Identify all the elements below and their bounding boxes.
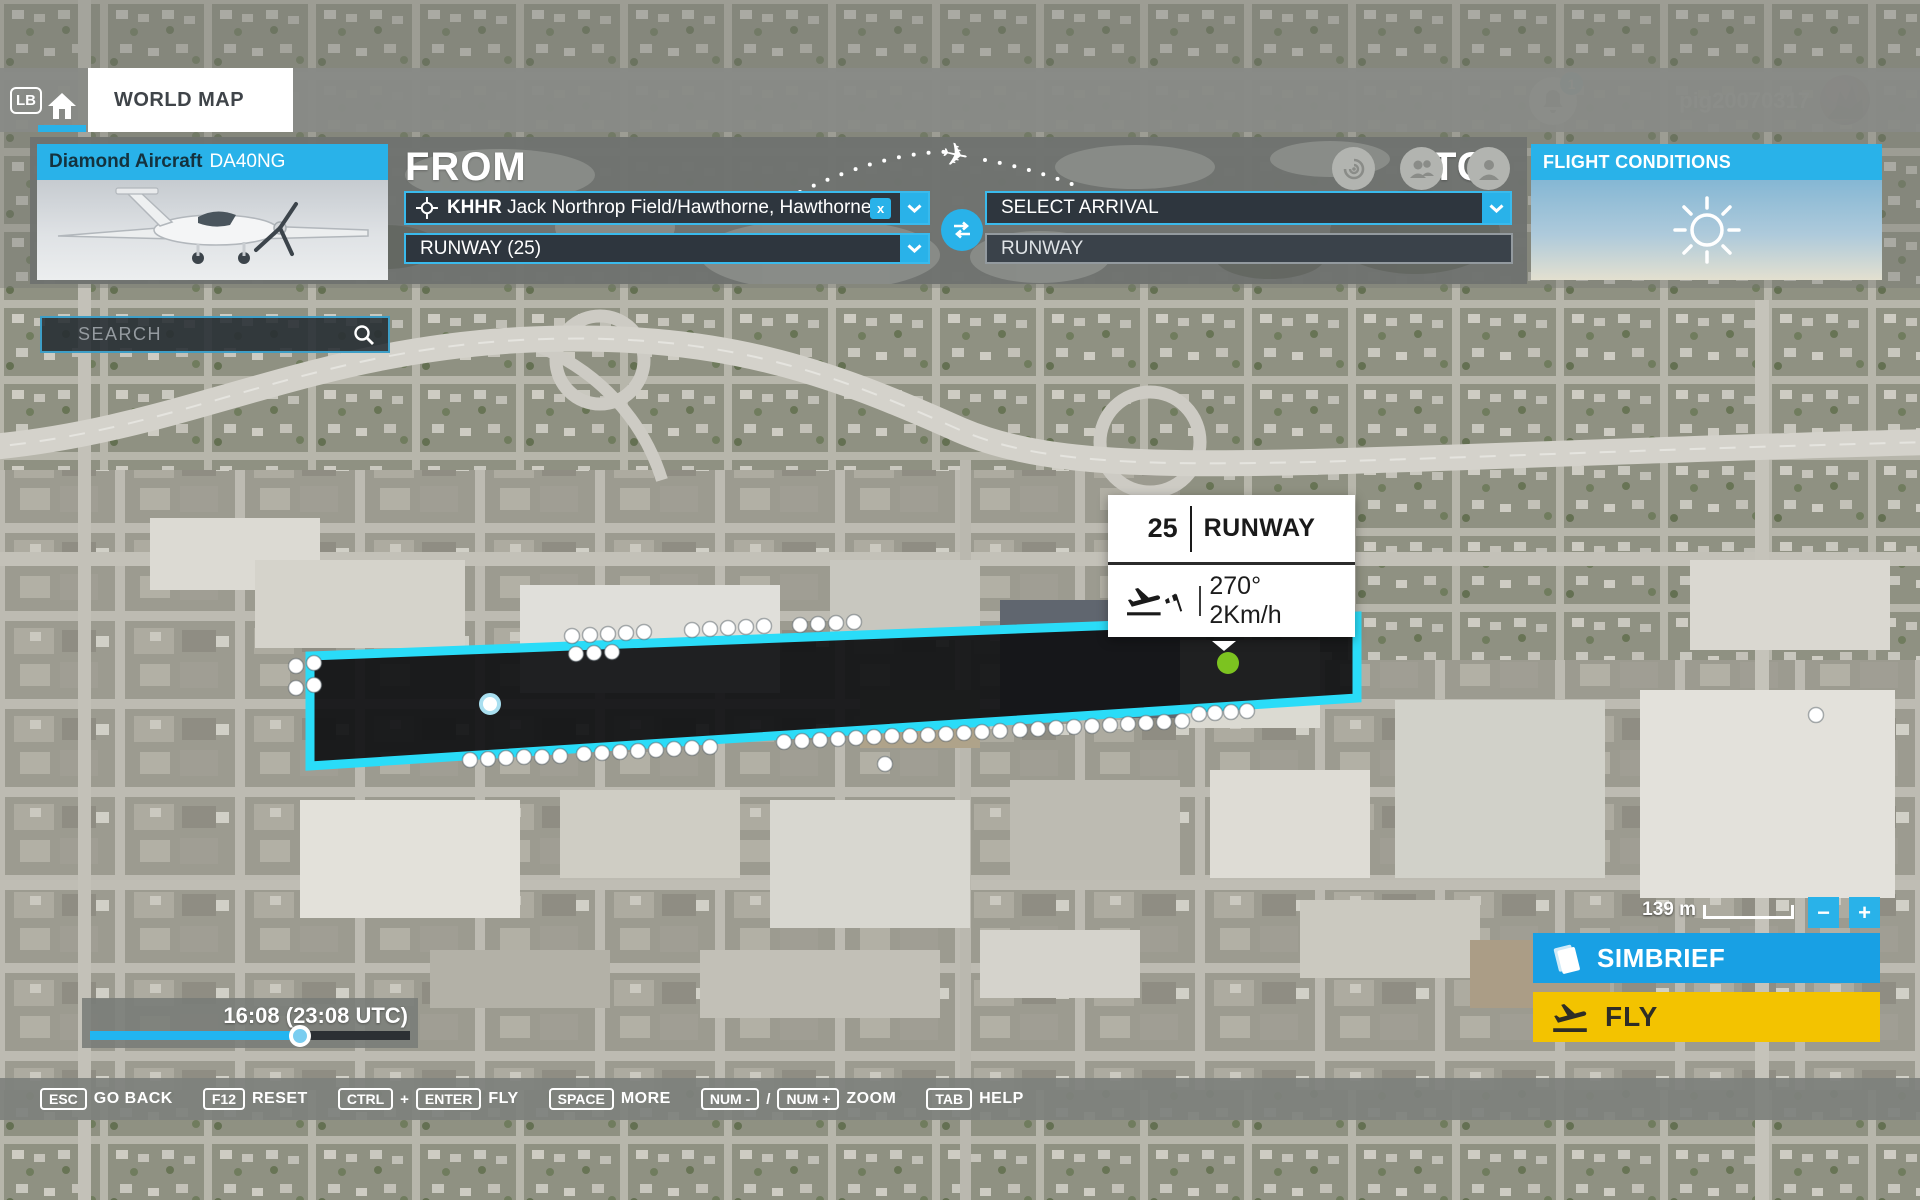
radar-icon xyxy=(1341,156,1367,182)
flight-takeoff-icon xyxy=(1549,1001,1591,1033)
parking-spot-dot[interactable] xyxy=(793,618,808,633)
map-scale-label: 139 m xyxy=(1626,899,1696,921)
parking-spot-dot[interactable] xyxy=(975,725,990,740)
arrival-runway-placeholder: RUNWAY xyxy=(1001,238,1083,260)
parking-spot-dot[interactable] xyxy=(878,757,893,772)
departure-airport-field[interactable]: KHHR Jack Northrop Field/Hawthorne, Hawt… xyxy=(404,191,930,225)
parking-spot-dot[interactable] xyxy=(831,732,846,747)
shortcut-join: / xyxy=(766,1091,770,1108)
parking-spot-dot[interactable] xyxy=(1085,719,1100,734)
parking-spot-dot[interactable] xyxy=(631,744,646,759)
aircraft-model: DA40NG xyxy=(209,151,285,173)
zoom-in-button[interactable]: + xyxy=(1849,897,1880,928)
shortcut-hint: ESCGO BACK xyxy=(40,1088,173,1110)
parking-spot-dot[interactable] xyxy=(613,745,628,760)
parking-spot-dot[interactable] xyxy=(685,623,700,638)
parking-spot-dot[interactable] xyxy=(721,621,736,636)
departure-name: Jack Northrop Field/Hawthorne, Hawthorne xyxy=(507,197,870,218)
key-cap: CTRL xyxy=(338,1088,393,1110)
flight-conditions-title: FLIGHT CONDITIONS xyxy=(1543,152,1731,173)
time-slider-track[interactable] xyxy=(90,1031,410,1040)
parking-spot-dot[interactable] xyxy=(1157,715,1172,730)
flight-conditions-panel[interactable]: FLIGHT CONDITIONS xyxy=(1531,144,1882,280)
parking-spot-dot[interactable] xyxy=(1208,706,1223,721)
parking-spot-dot[interactable] xyxy=(829,616,844,631)
chevron-down-icon xyxy=(907,204,922,213)
search-input[interactable]: SEARCH xyxy=(40,316,390,353)
briefing-doc-icon xyxy=(1549,941,1583,975)
flight-conditions-header: FLIGHT CONDITIONS xyxy=(1531,144,1882,180)
windsock-icon xyxy=(1164,588,1192,614)
parking-spot-dot[interactable] xyxy=(601,627,616,642)
arrival-dropdown-button[interactable] xyxy=(1482,193,1510,223)
friends-icon xyxy=(1408,158,1436,180)
from-label: FROM xyxy=(405,145,527,190)
runway-title: RUNWAY xyxy=(1204,514,1316,543)
time-slider-thumb[interactable] xyxy=(289,1025,311,1047)
divider xyxy=(1199,586,1201,616)
parking-spot-dot[interactable] xyxy=(595,746,610,761)
departure-dropdown-button[interactable] xyxy=(900,193,928,223)
arrival-runway-field: RUNWAY xyxy=(985,233,1513,264)
key-cap: NUM + xyxy=(777,1088,839,1110)
parking-spot-dot[interactable] xyxy=(535,750,550,765)
keyboard-shortcut-bar: ESCGO BACKF12RESETCTRL+ENTERFLYSPACEMORE… xyxy=(0,1078,1920,1120)
parking-spot-dot[interactable] xyxy=(289,681,304,696)
departure-runway-dropdown-button[interactable] xyxy=(900,235,928,262)
activity-button[interactable] xyxy=(1332,147,1375,190)
parking-spot-dot[interactable] xyxy=(583,628,598,643)
key-cap: F12 xyxy=(203,1088,245,1110)
parking-spot-dot[interactable] xyxy=(605,645,620,660)
parking-spot-dot[interactable] xyxy=(939,727,954,742)
parking-spot-dot[interactable] xyxy=(703,622,718,637)
parking-spot-dot[interactable] xyxy=(1139,716,1154,731)
zoom-out-button[interactable]: − xyxy=(1808,897,1839,928)
key-cap: SPACE xyxy=(549,1088,614,1110)
runway-number: 25 xyxy=(1148,513,1178,544)
active-tab-indicator xyxy=(38,125,86,132)
parking-spot-dot[interactable] xyxy=(577,747,592,762)
shortcut-label: ZOOM xyxy=(846,1090,896,1108)
parking-spot-dot[interactable] xyxy=(703,740,718,755)
shortcut-hint: CTRL+ENTERFLY xyxy=(338,1088,519,1110)
parking-spot-dot[interactable] xyxy=(885,729,900,744)
parking-spot-dot[interactable] xyxy=(1224,705,1239,720)
shortcut-hint: SPACEMORE xyxy=(549,1088,671,1110)
profile-button[interactable] xyxy=(1467,147,1510,190)
parking-spot-dot[interactable] xyxy=(739,620,754,635)
text-cursor xyxy=(1190,506,1192,552)
parking-spot-dot[interactable] xyxy=(619,626,634,641)
parking-spot-dot[interactable] xyxy=(1240,704,1255,719)
wind-info: 270° 2Km/h xyxy=(1164,572,1339,630)
fly-button[interactable]: FLY xyxy=(1533,992,1880,1042)
crosshair-icon xyxy=(416,197,438,219)
parking-spot-dot[interactable] xyxy=(553,749,568,764)
departure-icao: KHHR xyxy=(447,197,502,218)
wind-direction-speed: 270° 2Km/h xyxy=(1209,572,1339,630)
weather-preview xyxy=(1531,180,1882,280)
parking-spot-dot[interactable] xyxy=(849,731,864,746)
parking-spot-dot[interactable] xyxy=(289,659,304,674)
parking-spot-dot[interactable] xyxy=(565,629,580,644)
sun-icon xyxy=(1671,194,1743,266)
parking-spot-dot[interactable] xyxy=(463,753,478,768)
parking-spot-dot[interactable] xyxy=(757,619,772,634)
simbrief-label: SIMBRIEF xyxy=(1597,943,1725,974)
shortcut-join: + xyxy=(400,1091,409,1108)
world-map-screen: 25 RUNWAY 270° 2Km/h S xyxy=(0,0,1920,1200)
popup-pointer xyxy=(1212,641,1236,651)
time-value: 16:08 (23:08 UTC) xyxy=(223,1003,408,1029)
parking-spot-dot[interactable] xyxy=(1067,720,1082,735)
runway-popup[interactable]: 25 RUNWAY 270° 2Km/h xyxy=(1108,495,1355,637)
parking-spot-dot[interactable] xyxy=(777,735,792,750)
arrival-placeholder: SELECT ARRIVAL xyxy=(1001,197,1159,219)
parking-spot-dot[interactable] xyxy=(481,752,496,767)
parking-spot-dot[interactable] xyxy=(847,615,862,630)
arrival-airport-field[interactable]: SELECT ARRIVAL xyxy=(985,191,1512,225)
runway-start-dot[interactable] xyxy=(481,695,499,713)
spawn-point-dot-selected[interactable] xyxy=(1217,652,1239,674)
key-cap: ENTER xyxy=(416,1088,481,1110)
chevron-down-icon xyxy=(1489,204,1504,213)
parking-spot-dot[interactable] xyxy=(795,734,810,749)
swap-from-to-button[interactable] xyxy=(941,209,983,251)
search-placeholder: SEARCH xyxy=(78,324,162,345)
parking-spot-dot[interactable] xyxy=(813,733,828,748)
shortcut-label: HELP xyxy=(979,1090,1024,1108)
search-icon[interactable] xyxy=(352,323,376,347)
clear-departure-button[interactable]: x xyxy=(870,198,891,219)
parking-spot-dot[interactable] xyxy=(921,728,936,743)
parking-spot-dot[interactable] xyxy=(587,646,602,661)
parking-spot-dot[interactable] xyxy=(1013,723,1028,738)
shortcut-hint: TABHELP xyxy=(926,1088,1023,1110)
time-slider-fill xyxy=(90,1031,300,1040)
shortcut-hint: F12RESET xyxy=(203,1088,308,1110)
aircraft-panel-header: Diamond Aircraft DA40NG xyxy=(37,144,388,180)
parking-spot-dot[interactable] xyxy=(685,741,700,756)
parking-spot-dot[interactable] xyxy=(569,647,584,662)
parking-spot-dot[interactable] xyxy=(811,617,826,632)
person-icon xyxy=(1477,157,1501,181)
parking-spot-dot[interactable] xyxy=(993,724,1008,739)
flight-takeoff-icon xyxy=(1124,585,1164,617)
parking-spot-dot[interactable] xyxy=(667,742,682,757)
parking-spot-dot[interactable] xyxy=(1121,717,1136,732)
parking-spot-dot[interactable] xyxy=(307,678,322,693)
parking-spot-dot[interactable] xyxy=(957,726,972,741)
shortcut-label: RESET xyxy=(252,1090,308,1108)
parking-spot-dot[interactable] xyxy=(517,750,532,765)
top-navigation-bar: LB WORLD MAP xyxy=(0,68,1920,132)
tab-world-map[interactable]: WORLD MAP xyxy=(88,68,293,132)
map-scale-bracket xyxy=(1703,905,1794,919)
fly-label: FLY xyxy=(1605,1001,1658,1033)
departure-runway-value: RUNWAY (25) xyxy=(420,238,541,260)
parking-spot-dot[interactable] xyxy=(499,751,514,766)
shortcut-label: MORE xyxy=(621,1090,671,1108)
home-icon xyxy=(47,92,77,120)
airplane-icon: ✈ xyxy=(938,137,972,175)
parking-spot-dot[interactable] xyxy=(1809,708,1824,723)
parking-spot-dot[interactable] xyxy=(1103,718,1118,733)
shortcut-label: FLY xyxy=(488,1090,518,1108)
shortcut-label: GO BACK xyxy=(94,1090,173,1108)
shortcut-hint: NUM -/NUM +ZOOM xyxy=(701,1088,897,1110)
parking-spot-dot[interactable] xyxy=(903,729,918,744)
key-cap: TAB xyxy=(926,1088,972,1110)
aircraft-image xyxy=(37,180,388,280)
time-of-day-slider[interactable]: 16:08 (23:08 UTC) xyxy=(82,998,418,1048)
simbrief-button[interactable]: SIMBRIEF xyxy=(1533,933,1880,983)
parking-spot-dot[interactable] xyxy=(1175,714,1190,729)
world-map-tab-label: WORLD MAP xyxy=(114,89,244,112)
friends-button[interactable] xyxy=(1400,147,1443,190)
parking-spot-dot[interactable] xyxy=(1049,721,1064,736)
parking-spot-dot[interactable] xyxy=(637,625,652,640)
chevron-down-icon xyxy=(907,244,922,253)
key-cap: NUM - xyxy=(701,1088,759,1110)
runway-popup-info-row: 270° 2Km/h xyxy=(1108,565,1355,637)
departure-runway-dropdown[interactable]: RUNWAY (25) xyxy=(404,233,930,264)
parking-spot-dot[interactable] xyxy=(1031,722,1046,737)
parking-spot-dot[interactable] xyxy=(307,656,322,671)
parking-spot-dot[interactable] xyxy=(1192,707,1207,722)
parking-spot-dot[interactable] xyxy=(649,743,664,758)
runway-popup-title-row: 25 RUNWAY xyxy=(1108,495,1355,565)
swap-horizontal-icon xyxy=(950,220,974,240)
aircraft-selector-panel[interactable]: Diamond Aircraft DA40NG xyxy=(37,144,388,280)
aircraft-maker: Diamond Aircraft xyxy=(49,151,202,173)
key-cap: ESC xyxy=(40,1088,87,1110)
parking-spot-dot[interactable] xyxy=(867,730,882,745)
